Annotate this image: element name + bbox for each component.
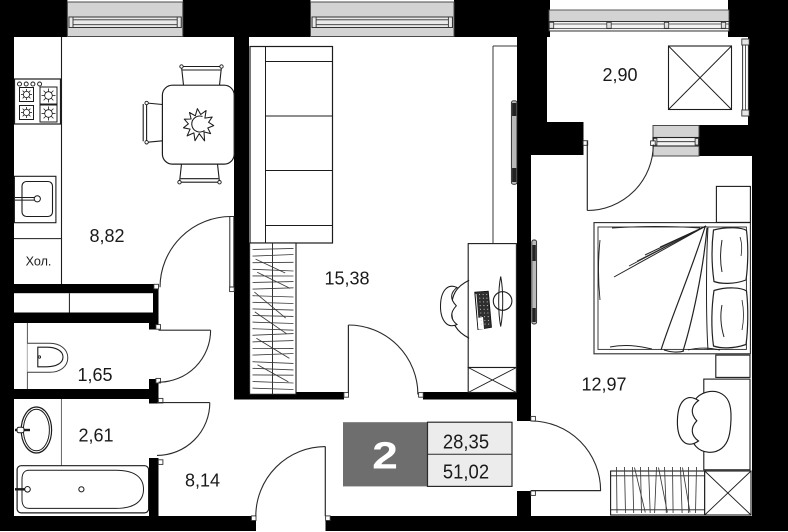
svg-text:8,14: 8,14 bbox=[185, 471, 220, 491]
svg-text:8,82: 8,82 bbox=[89, 226, 124, 246]
svg-text:2: 2 bbox=[372, 434, 398, 476]
svg-text:28,35: 28,35 bbox=[443, 431, 489, 454]
svg-text:15,38: 15,38 bbox=[324, 269, 369, 289]
svg-text:12,97: 12,97 bbox=[581, 375, 626, 395]
svg-text:1,65: 1,65 bbox=[77, 365, 112, 385]
svg-text:2,90: 2,90 bbox=[602, 65, 637, 85]
svg-text:51,02: 51,02 bbox=[443, 460, 489, 483]
svg-text:Хол.: Хол. bbox=[26, 255, 52, 269]
svg-text:2,61: 2,61 bbox=[78, 426, 113, 446]
